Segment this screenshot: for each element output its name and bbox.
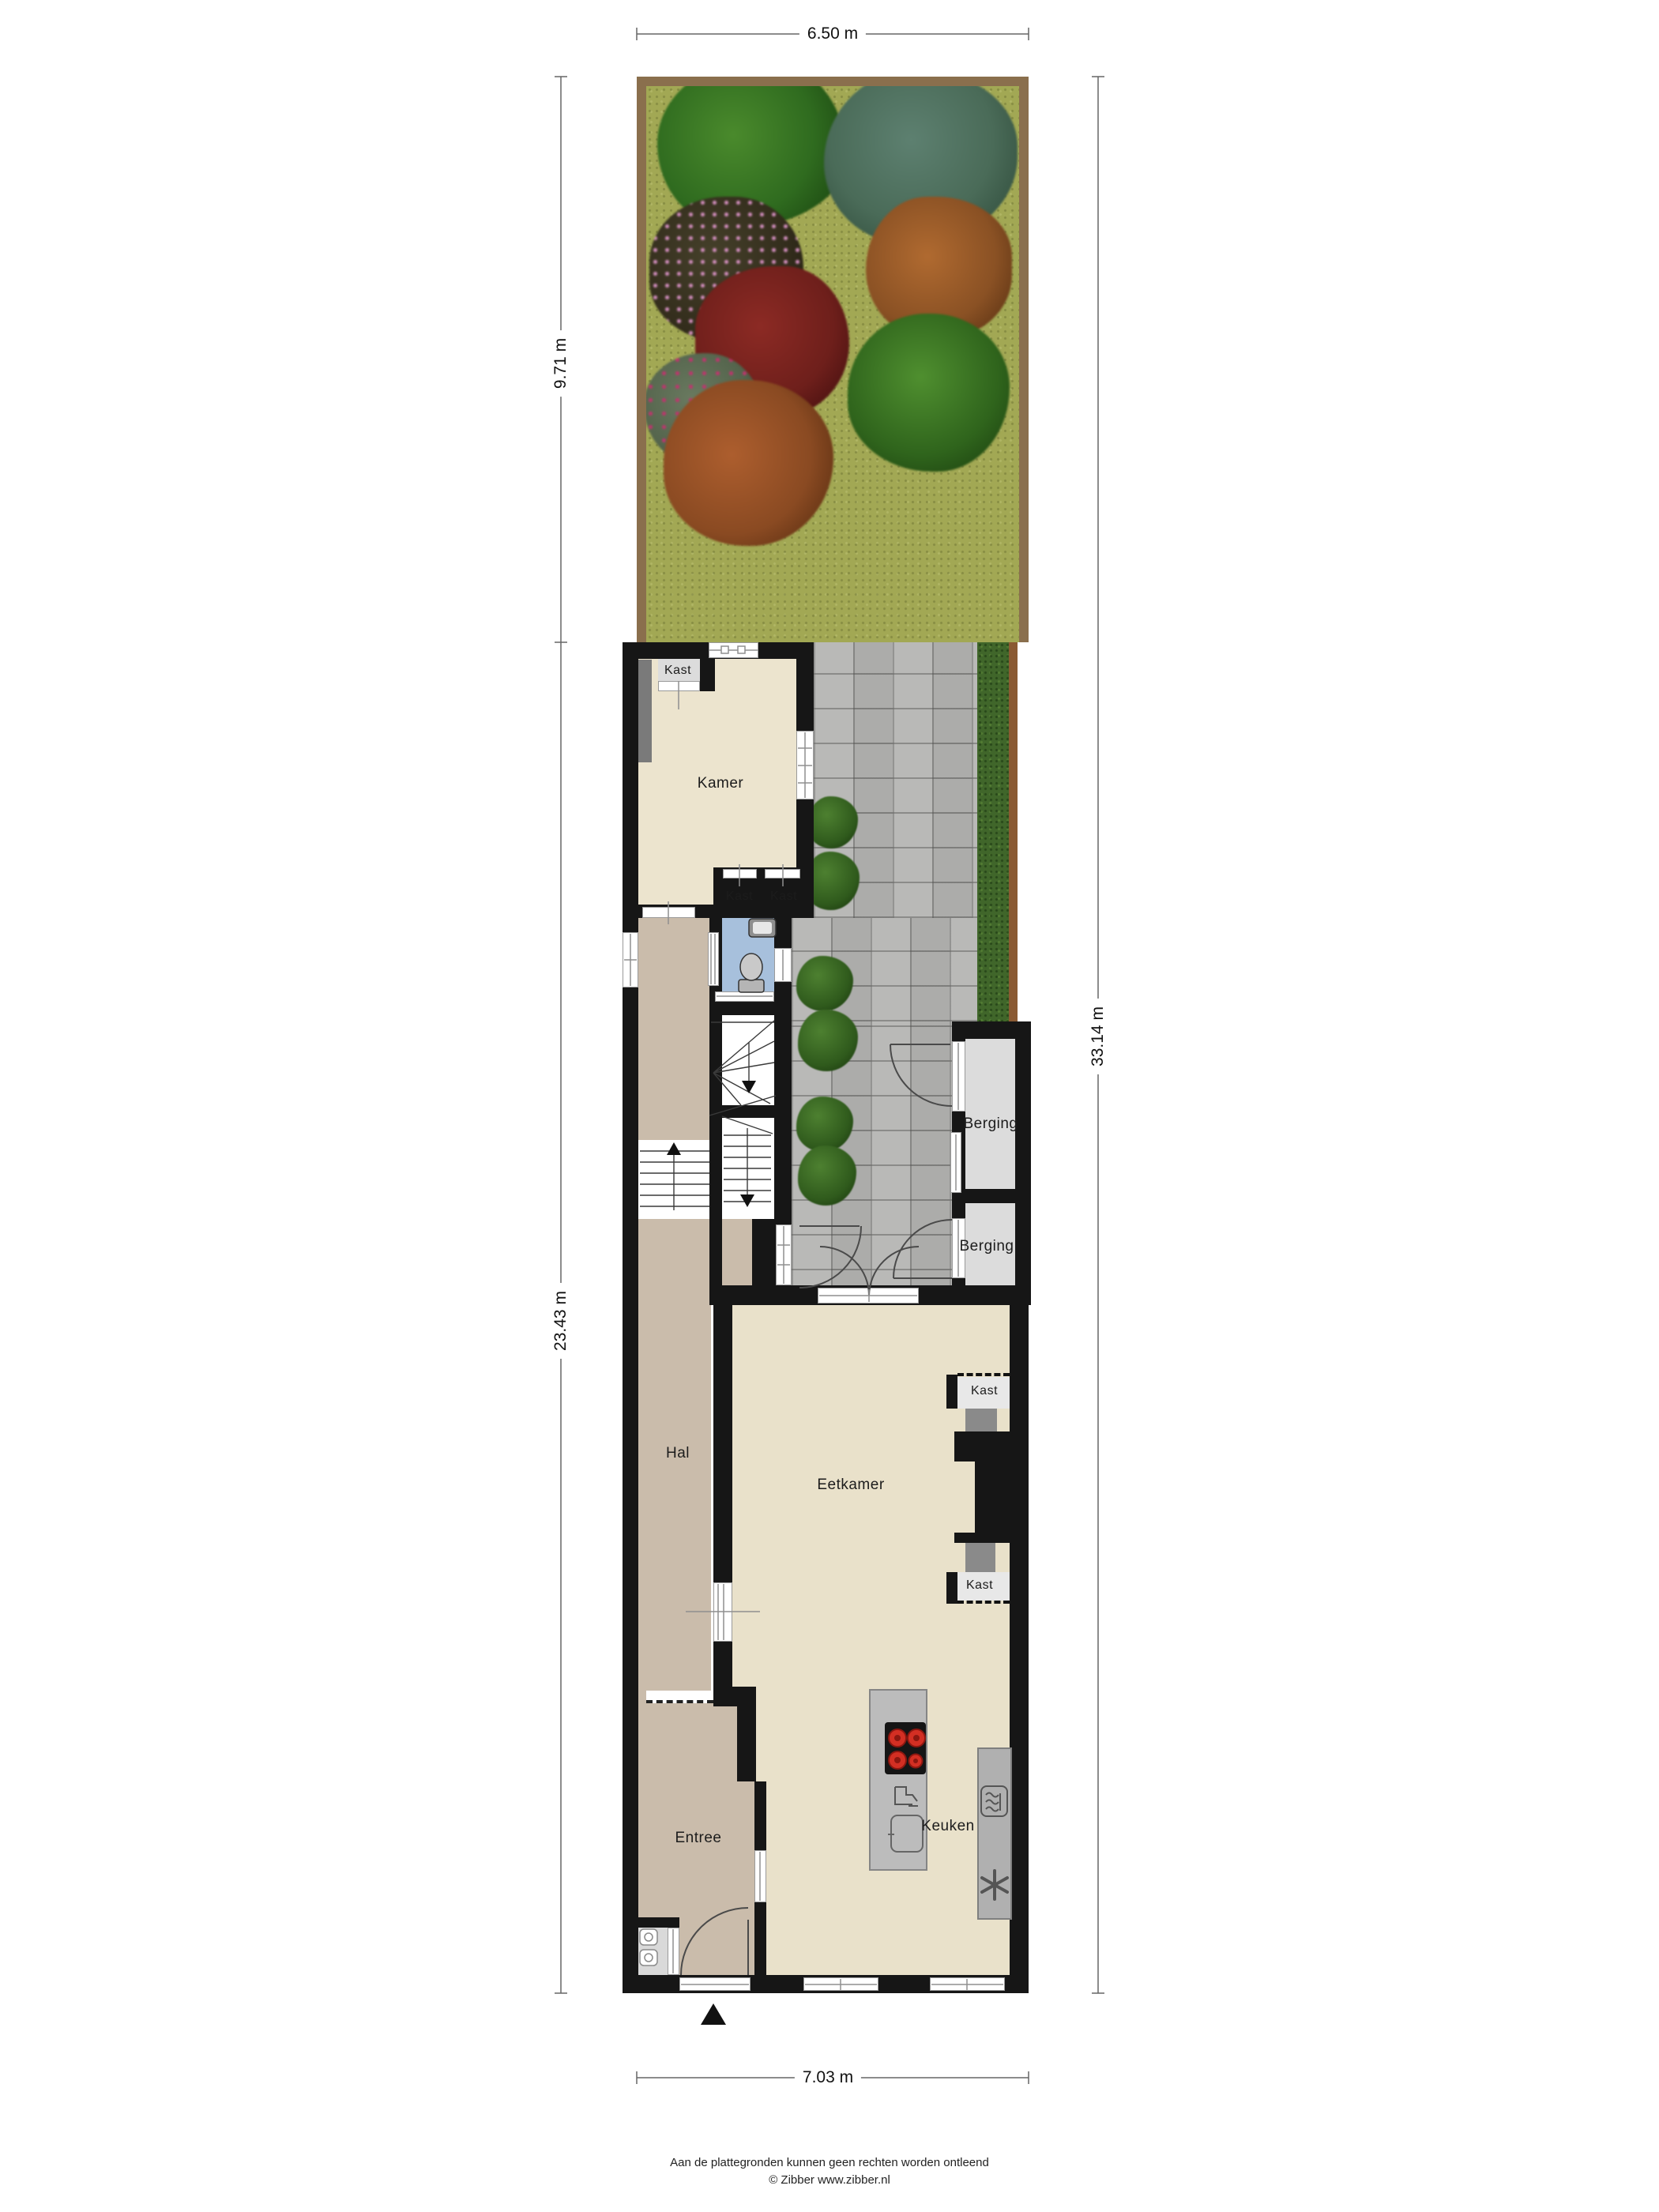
room-label-kast: Kast	[966, 1578, 993, 1593]
footer-copyright: © Zibber www.zibber.nl	[0, 2173, 1659, 2187]
dimension-label-top: 6.50 m	[799, 23, 866, 45]
dishwasher-icon	[895, 1787, 918, 1806]
door-arc	[820, 1247, 919, 1296]
kitchen-sink-icon	[888, 1815, 923, 1852]
window-panes	[624, 646, 1003, 1990]
room-label-berging: Berging	[964, 1115, 1018, 1133]
toilet-icon	[739, 954, 764, 992]
dimension-label-bottom: 7.03 m	[795, 2067, 861, 2089]
room-label-kamer: Kamer	[698, 775, 743, 792]
room-label-kast: Kast	[726, 890, 753, 904]
room-label-kast: Kast	[971, 1384, 998, 1398]
stairs-arrows	[667, 1081, 756, 1207]
dimension-label-house-left: 23.43 m	[550, 1283, 572, 1359]
door-arc	[681, 1908, 748, 1975]
entrance-marker-icon	[701, 2003, 726, 2025]
room-label-hal: Hal	[666, 1445, 690, 1462]
floorplan-canvas: Kast Kamer Kast Kast Berging Berging Hal…	[0, 0, 1659, 2212]
room-label-kast: Kast	[664, 664, 691, 678]
stairs-linework	[640, 1021, 776, 1210]
room-label-entree: Entree	[675, 1830, 722, 1847]
footer-disclaimer: Aan de plattegronden kunnen geen rechten…	[0, 2156, 1659, 2169]
room-label-berging: Berging	[960, 1238, 1014, 1255]
burner-icons	[889, 1729, 925, 1769]
fan-icon	[982, 1871, 1007, 1899]
plan-linework	[0, 0, 1659, 2212]
room-label-keuken: Keuken	[921, 1818, 974, 1835]
sink-icon	[749, 919, 776, 937]
room-label-kast: Kast	[770, 890, 797, 904]
oven-icon	[981, 1786, 1007, 1816]
dimension-label-garden-left: 9.71 m	[550, 330, 572, 397]
room-label-eetkamer: Eetkamer	[817, 1477, 884, 1494]
door-arc	[890, 1044, 952, 1106]
dimension-lines	[555, 28, 1104, 2084]
meter-icons	[640, 1929, 657, 1966]
dimension-label-right: 33.14 m	[1087, 999, 1109, 1074]
door-arc	[799, 1226, 861, 1288]
